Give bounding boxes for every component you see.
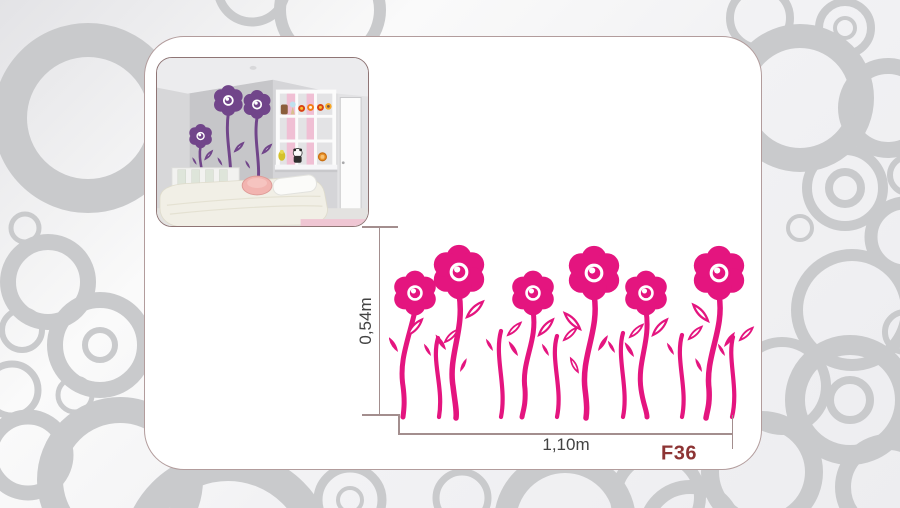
product-card: 0,54m 1,10m F36 xyxy=(144,36,762,470)
room-preview-photo xyxy=(156,57,369,227)
width-dimension-label: 1,10m xyxy=(542,435,589,455)
height-dimension-label: 0,54m xyxy=(356,297,376,344)
product-code: F36 xyxy=(661,443,697,466)
width-dimension-right-cap xyxy=(732,415,734,449)
width-dimension-left-cap xyxy=(398,414,400,434)
height-dimension-top-cap xyxy=(362,226,398,228)
room-illustration xyxy=(157,58,368,226)
toy-shelf xyxy=(275,92,337,173)
flower-decal-design xyxy=(389,244,755,430)
height-dimension-bottom-cap xyxy=(362,414,398,416)
catalog-page: 0,54m 1,10m F36 xyxy=(0,0,900,508)
door xyxy=(340,98,361,223)
height-dimension-line xyxy=(379,226,381,414)
